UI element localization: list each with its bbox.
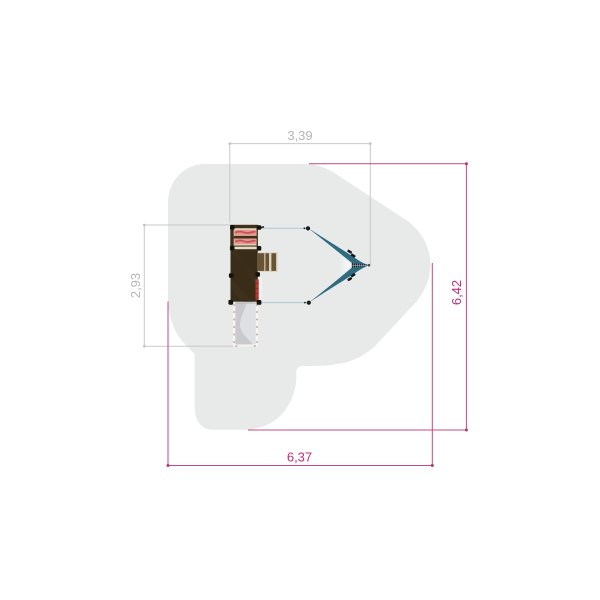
svg-text:6,42: 6,42 [449,280,464,305]
svg-text:3,39: 3,39 [287,128,312,143]
svg-text:2,93: 2,93 [128,273,143,298]
svg-text:6,37: 6,37 [287,449,312,464]
